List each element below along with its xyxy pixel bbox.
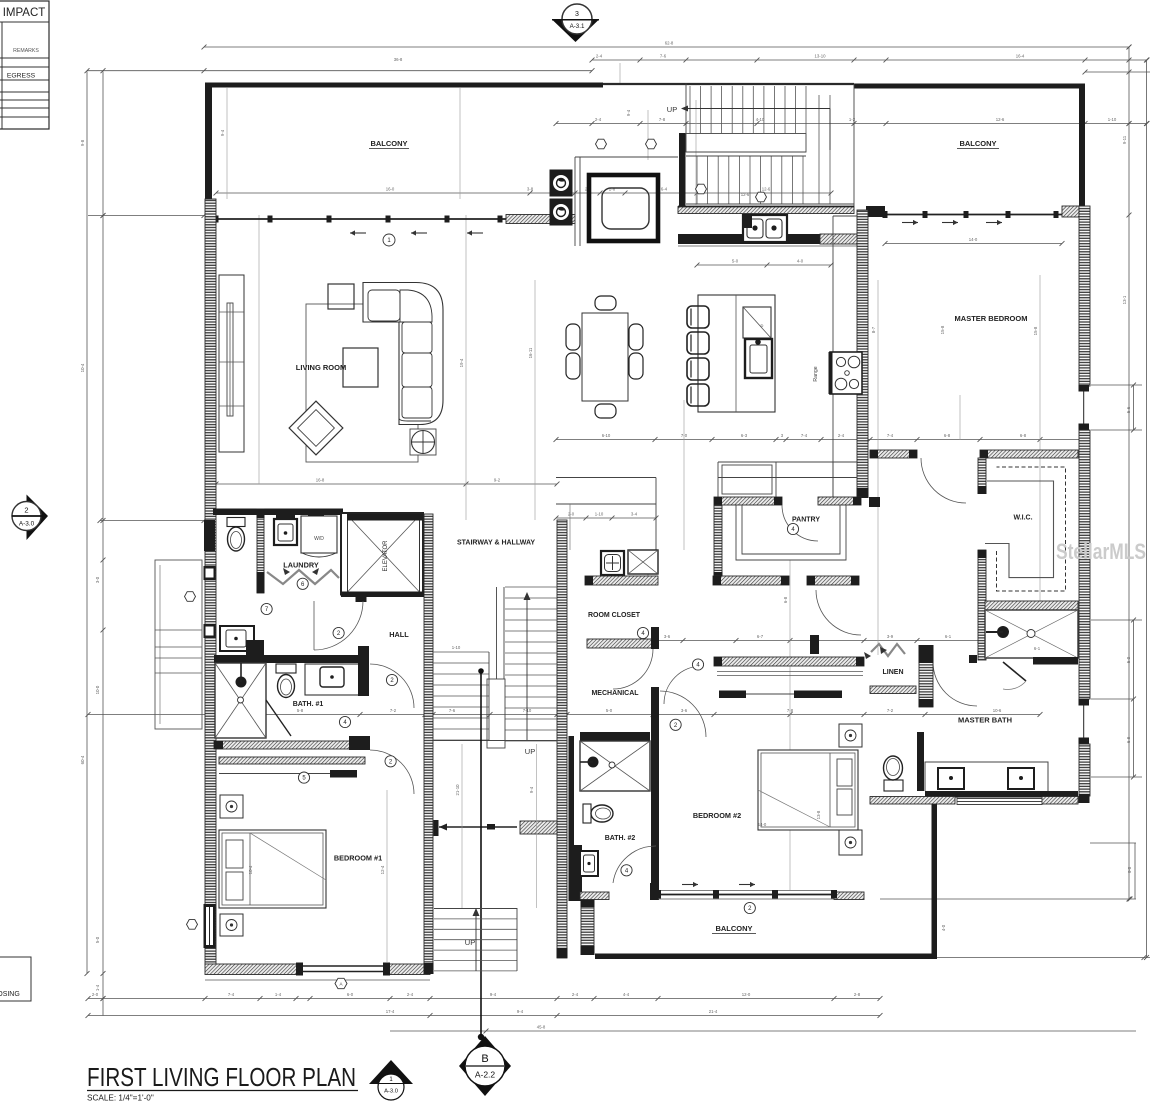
svg-text:5-8: 5-8	[297, 708, 304, 713]
svg-text:9-4: 9-4	[517, 1009, 524, 1014]
svg-text:MASTER BEDROOM: MASTER BEDROOM	[955, 314, 1028, 323]
svg-text:7-8: 7-8	[787, 708, 794, 713]
svg-text:LINEN: LINEN	[883, 669, 904, 676]
svg-text:6-4: 6-4	[661, 187, 668, 192]
svg-text:STAIRWAY & HALLWAY: STAIRWAY & HALLWAY	[457, 540, 535, 547]
svg-text:12-4: 12-4	[380, 865, 385, 874]
svg-text:BEDROOM #1: BEDROOM #1	[334, 854, 382, 863]
svg-text:13-1: 13-1	[1122, 295, 1127, 304]
svg-text:6-1: 6-1	[1034, 646, 1041, 651]
svg-text:15-8: 15-8	[940, 325, 945, 334]
svg-text:StellarMLS: StellarMLS	[1056, 539, 1146, 564]
svg-text:A-3.0: A-3.0	[384, 1089, 398, 1095]
svg-text:A-3.0: A-3.0	[19, 521, 35, 528]
svg-text:21-4: 21-4	[709, 1009, 718, 1014]
svg-text:1-4: 1-4	[95, 984, 100, 991]
svg-text:3-6: 3-6	[664, 634, 671, 639]
svg-text:IMPACT: IMPACT	[3, 7, 46, 19]
svg-text:12-0: 12-0	[742, 992, 751, 997]
svg-text:MASTER BATH: MASTER BATH	[958, 716, 1012, 725]
svg-text:6-3: 6-3	[741, 433, 748, 438]
svg-text:NOSING: NOSING	[0, 991, 20, 998]
svg-text:BATH. #1: BATH. #1	[293, 701, 324, 708]
svg-text:9-4: 9-4	[220, 129, 225, 136]
svg-text:5-0: 5-0	[732, 259, 739, 264]
svg-text:13-10: 13-10	[815, 54, 827, 59]
svg-text:1-10: 1-10	[452, 645, 461, 650]
svg-text:9-2: 9-2	[494, 478, 501, 483]
svg-text:5-6: 5-6	[1126, 406, 1131, 413]
svg-text:3-8: 3-8	[527, 187, 534, 192]
svg-text:LIVING ROOM: LIVING ROOM	[296, 363, 346, 372]
svg-text:10-4: 10-4	[80, 363, 85, 372]
svg-text:2-4: 2-4	[838, 433, 845, 438]
svg-text:Range: Range	[813, 366, 819, 381]
svg-text:13-8: 13-8	[816, 810, 821, 819]
svg-text:BATH. #2: BATH. #2	[605, 835, 636, 842]
svg-text:4-0: 4-0	[941, 924, 946, 931]
svg-text:5-0: 5-0	[95, 936, 100, 943]
svg-text:60-4: 60-4	[80, 755, 85, 764]
svg-text:2-4: 2-4	[596, 54, 603, 59]
svg-text:UP: UP	[667, 105, 677, 114]
svg-text:2-4: 2-4	[595, 117, 602, 122]
svg-text:6-8: 6-8	[1020, 433, 1027, 438]
svg-text:19-4: 19-4	[459, 358, 464, 367]
svg-text:14-0: 14-0	[969, 237, 978, 242]
svg-text:6-7: 6-7	[757, 634, 764, 639]
svg-text:7-4: 7-4	[801, 433, 808, 438]
svg-text:3-4: 3-4	[631, 512, 638, 517]
svg-text:9-4: 9-4	[626, 109, 631, 116]
svg-text:A-3.1: A-3.1	[570, 23, 585, 30]
svg-text:9-11: 9-11	[1122, 135, 1127, 144]
svg-text:MECHANICAL: MECHANICAL	[591, 690, 639, 697]
svg-text:6-1: 6-1	[945, 634, 952, 639]
svg-text:9-4: 9-4	[529, 786, 534, 793]
svg-text:6-10: 6-10	[602, 433, 611, 438]
svg-text:16-8: 16-8	[316, 478, 325, 483]
svg-text:12-6: 12-6	[996, 117, 1005, 122]
svg-text:21-10: 21-10	[455, 784, 460, 796]
svg-text:2-4: 2-4	[572, 992, 579, 997]
svg-text:16-11: 16-11	[528, 347, 533, 358]
svg-text:7-8: 7-8	[659, 117, 666, 122]
svg-text:BEDROOM #2: BEDROOM #2	[693, 811, 741, 820]
svg-text:2: 2	[24, 506, 28, 515]
svg-text:1-4: 1-4	[275, 992, 282, 997]
svg-text:45-8: 45-8	[537, 1025, 546, 1030]
svg-text:14-0: 14-0	[758, 822, 767, 827]
svg-text:2-0: 2-0	[568, 512, 575, 517]
svg-text:3-0: 3-0	[95, 576, 100, 583]
svg-text:4-0: 4-0	[797, 259, 804, 264]
svg-text:1-2: 1-2	[849, 117, 856, 122]
svg-text:6-8: 6-8	[1127, 866, 1132, 873]
svg-text:2-8: 2-8	[609, 187, 616, 192]
svg-text:8-7: 8-7	[871, 326, 876, 333]
svg-text:7-6: 7-6	[660, 54, 667, 59]
svg-text:REMARKS: REMARKS	[13, 48, 39, 54]
svg-text:BALCONY: BALCONY	[370, 139, 407, 148]
svg-text:6-8: 6-8	[1126, 736, 1131, 743]
svg-text:A: A	[339, 981, 342, 986]
svg-text:7-0: 7-0	[681, 433, 688, 438]
svg-text:1-10: 1-10	[595, 512, 604, 517]
svg-text:FIRST LIVING FLOOR PLAN: FIRST LIVING FLOOR PLAN	[87, 1064, 356, 1092]
svg-text:9-8: 9-8	[80, 139, 85, 146]
svg-text:7-6: 7-6	[449, 708, 456, 713]
svg-text:5-0: 5-0	[1126, 656, 1131, 663]
svg-text:UP: UP	[525, 747, 535, 756]
svg-text:D: D	[761, 323, 764, 328]
svg-text:3: 3	[575, 11, 579, 18]
svg-text:6-0: 6-0	[347, 992, 354, 997]
svg-text:10-4: 10-4	[248, 865, 253, 874]
svg-text:15-8: 15-8	[1033, 326, 1038, 335]
svg-text:3-9: 3-9	[887, 634, 894, 639]
svg-text:ROOM CLOSET: ROOM CLOSET	[588, 612, 641, 619]
svg-text:B: B	[481, 1053, 488, 1065]
svg-text:SCALE: 1/4"=1'-0": SCALE: 1/4"=1'-0"	[87, 1094, 154, 1102]
svg-text:A-2.2: A-2.2	[475, 1070, 496, 1080]
svg-text:1-10: 1-10	[1108, 117, 1117, 122]
svg-text:ELEVATOR: ELEVATOR	[383, 540, 389, 572]
svg-text:3-6: 3-6	[681, 708, 688, 713]
svg-text:7-4: 7-4	[228, 992, 235, 997]
svg-text:2-0: 2-0	[92, 992, 99, 997]
svg-text:UP: UP	[465, 938, 475, 947]
svg-text:12-6: 12-6	[741, 192, 750, 197]
svg-text:5-0: 5-0	[606, 708, 613, 713]
svg-text:W/D: W/D	[314, 536, 324, 542]
svg-text:12-6: 12-6	[762, 187, 771, 192]
svg-text:2-4: 2-4	[407, 992, 414, 997]
svg-text:6-8: 6-8	[783, 596, 788, 603]
svg-text:7-2: 7-2	[390, 708, 397, 713]
svg-text:PANTRY: PANTRY	[792, 517, 820, 524]
svg-text:EGRESS: EGRESS	[7, 73, 36, 80]
svg-text:LAUNDRY: LAUNDRY	[283, 561, 319, 570]
svg-text:7-4: 7-4	[887, 433, 894, 438]
svg-text:10-0: 10-0	[95, 685, 100, 694]
svg-text:9-4: 9-4	[490, 992, 497, 997]
svg-text:17-4: 17-4	[386, 1009, 395, 1014]
svg-text:4-4: 4-4	[623, 992, 630, 997]
svg-text:62-8: 62-8	[665, 41, 674, 46]
svg-text:10-6: 10-6	[993, 708, 1002, 713]
svg-text:BALCONY: BALCONY	[715, 924, 752, 933]
svg-text:HALL: HALL	[389, 630, 409, 639]
svg-text:6-8: 6-8	[944, 433, 951, 438]
svg-text:2-8: 2-8	[854, 992, 861, 997]
svg-text:16-0: 16-0	[386, 187, 395, 192]
svg-text:W.I.C.: W.I.C.	[1013, 515, 1032, 522]
svg-text:BALCONY: BALCONY	[959, 139, 996, 148]
svg-text:16-4: 16-4	[1016, 54, 1025, 59]
svg-text:7-2: 7-2	[887, 708, 894, 713]
svg-text:36-8: 36-8	[394, 57, 403, 62]
